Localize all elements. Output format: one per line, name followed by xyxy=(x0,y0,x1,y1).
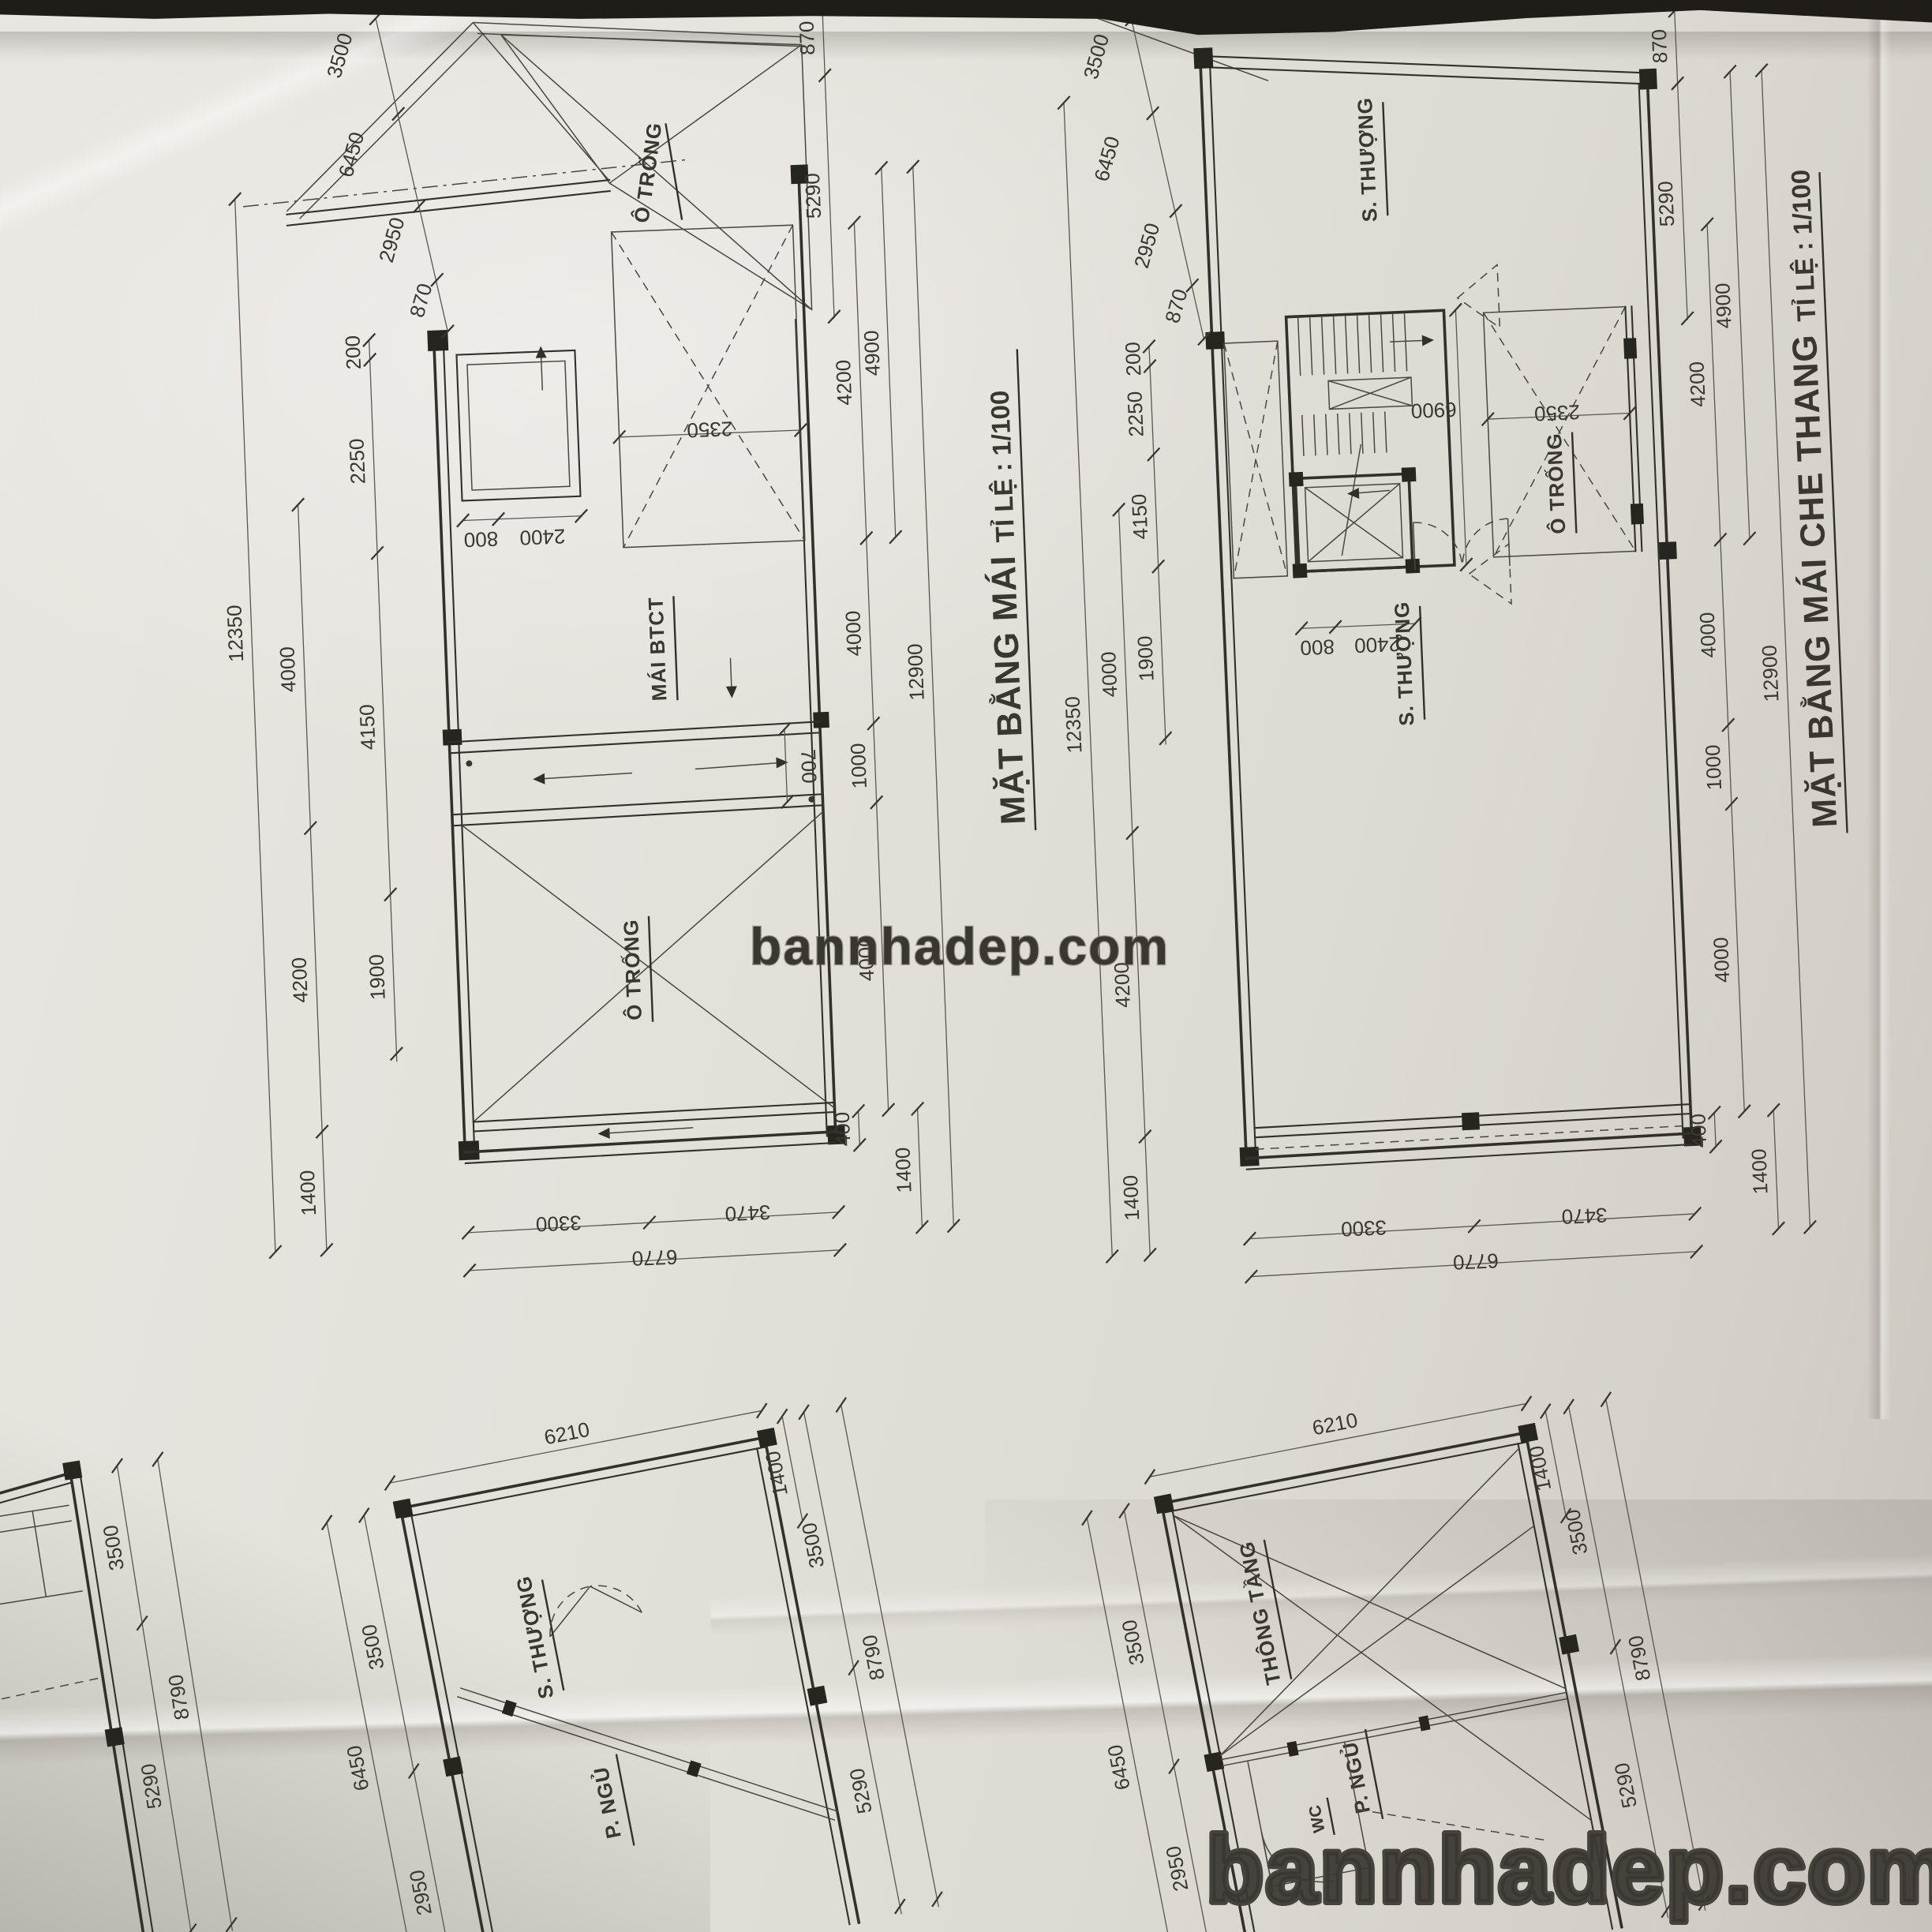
main-void-o-trong xyxy=(462,811,834,1121)
dim-800: 800 xyxy=(1300,635,1335,660)
dim-5290: 5290 xyxy=(136,1762,167,1810)
dim-slant-3500: 3500 xyxy=(322,30,358,80)
dim-right-3500: 3500 xyxy=(1560,1507,1592,1557)
dim-3300: 3300 xyxy=(1341,1215,1387,1241)
dim-left-4200: 4200 xyxy=(1110,962,1135,1009)
dim-2250: 2250 xyxy=(1122,391,1148,437)
dim-left-2950: 2950 xyxy=(405,1868,436,1918)
dim-right-8790: 8790 xyxy=(1623,1634,1655,1683)
dim-4150: 4150 xyxy=(1127,493,1152,540)
bottom-strip xyxy=(464,1103,837,1163)
dim-right-5290: 5290 xyxy=(1609,1761,1641,1810)
dim-right-5290: 5290 xyxy=(844,1766,876,1816)
dim-void-2350: 2350 xyxy=(1533,400,1580,425)
dim-800: 800 xyxy=(463,527,499,552)
dim-r-4000b: 4000 xyxy=(853,935,878,982)
staircase xyxy=(1286,310,1455,571)
dim-rt-870: 870 xyxy=(795,21,820,56)
dim-left-4000: 4000 xyxy=(275,646,301,693)
dim-r-1000: 1000 xyxy=(846,743,871,789)
dim-left-3500: 3500 xyxy=(1117,1618,1148,1668)
room-label-s-thuong: S. THƯỢNG xyxy=(1390,601,1419,726)
dim-12900: 12900 xyxy=(1758,645,1784,703)
left-inner-chain xyxy=(362,334,402,1062)
dim-1900: 1900 xyxy=(365,954,390,1001)
dim-left-4200: 4200 xyxy=(287,957,313,1003)
left-dashed-void xyxy=(1224,341,1287,578)
dim-left-6450: 6450 xyxy=(342,1743,373,1793)
dim-6770: 6770 xyxy=(631,1245,678,1271)
dim-slant-2950: 2950 xyxy=(1129,220,1164,271)
walls xyxy=(393,1428,870,1932)
double-door xyxy=(1413,519,1510,570)
room-label-o-trong-top: Ô TRỐNG xyxy=(629,121,666,224)
dim-right-3500: 3500 xyxy=(797,1521,829,1571)
divider-wall xyxy=(1220,1689,1568,1770)
plan-title-roof: MẶT BẰNG MÁITỈ LỆ : 1/100 xyxy=(977,390,1033,826)
dim-8790: 8790 xyxy=(163,1673,194,1722)
room-label-wc: WC xyxy=(1305,1803,1328,1834)
dim-6770: 6770 xyxy=(1452,1249,1499,1274)
dim-r-1400: 1400 xyxy=(1747,1148,1772,1195)
dim-rt-870: 870 xyxy=(1647,28,1672,64)
dashed-void xyxy=(605,225,811,548)
double-door xyxy=(542,1578,643,1637)
dim-rt-5290: 5290 xyxy=(1653,181,1679,227)
dim-400: 400 xyxy=(1686,1113,1711,1148)
dim-3470: 3470 xyxy=(1561,1204,1608,1229)
dim-12350: 12350 xyxy=(1060,696,1086,754)
left-col-chain xyxy=(291,498,333,1256)
dim-2400: 2400 xyxy=(519,525,566,550)
dim-gutter-700: 700 xyxy=(796,749,822,784)
outer-walls xyxy=(1193,29,1702,1166)
dim-1900: 1900 xyxy=(1133,635,1158,682)
dim-2250: 2250 xyxy=(344,438,369,485)
right-top-chain xyxy=(1668,4,1694,324)
dim-r-4000a: 4000 xyxy=(1695,612,1720,658)
dim-4150: 4150 xyxy=(354,704,380,751)
dim-right-8790: 8790 xyxy=(857,1633,889,1683)
blueprint-photo: Ô TRỐNG xyxy=(0,0,1932,1932)
underline-s-thuong-top xyxy=(1383,102,1387,215)
left-total-chain xyxy=(228,193,282,1259)
dim-6900: 6900 xyxy=(1410,398,1457,423)
floor-plan-fragment-right: THÔNG TẦNG P. NGỦ WC xyxy=(1028,1356,1769,1932)
dim-200: 200 xyxy=(1121,342,1146,377)
room-label-mai-btct: MÁI BTCT xyxy=(643,597,671,702)
underline-o-trong xyxy=(1572,432,1576,534)
dim-4900: 4900 xyxy=(859,330,885,376)
dim-200: 200 xyxy=(340,335,365,370)
dim-12350: 12350 xyxy=(222,605,248,662)
dim-left-6450: 6450 xyxy=(1103,1743,1134,1792)
room-label-s-thuong: S. THƯỢNG xyxy=(511,1574,559,1701)
dim-left-3500: 3500 xyxy=(357,1623,388,1672)
dim-6210: 6210 xyxy=(1310,1408,1360,1440)
box-dim-chain xyxy=(456,509,587,526)
room-label-s-thuong-top: S. THƯỢNG xyxy=(1353,97,1382,223)
dim-void-2350: 2350 xyxy=(687,417,733,442)
left-inner-chain xyxy=(1143,340,1172,745)
dim-3470: 3470 xyxy=(724,1200,771,1226)
roof-plan: Ô TRỐNG xyxy=(161,0,1079,1322)
dim-r-4200: 4200 xyxy=(1684,361,1709,407)
dim-left-4000: 4000 xyxy=(1096,651,1121,698)
room-label-o-trong: Ô TRỐNG xyxy=(619,919,646,1020)
stair-roof-plan: S. THƯỢNG xyxy=(1013,0,1932,1341)
dim-slant-870: 870 xyxy=(405,281,437,320)
dim-12900: 12900 xyxy=(903,643,929,701)
dim-left-1400: 1400 xyxy=(295,1170,320,1216)
wc-room xyxy=(1248,1707,1548,1894)
underline-mai-btct xyxy=(673,596,677,700)
dim-1400: 1400 xyxy=(1524,1443,1556,1493)
blueprint-paper: Ô TRỐNG xyxy=(0,0,1932,1932)
void-cross-lines xyxy=(1174,1448,1591,1887)
gutter-strip xyxy=(449,721,823,826)
dim-r-1000: 1000 xyxy=(1701,744,1726,791)
dim-4900: 4900 xyxy=(1710,283,1735,329)
dim-3500: 3500 xyxy=(98,1523,129,1572)
dim-slant-3500: 3500 xyxy=(1079,32,1114,82)
glass-divider-wall xyxy=(455,1622,839,1886)
underline-s-thuong xyxy=(1420,606,1425,720)
plan-title-stair: MẶT BẰNG MÁI CHE THANGTỈ LỆ : 1/100 xyxy=(1777,169,1844,829)
walls xyxy=(1154,1423,1633,1932)
top-beam xyxy=(242,159,690,227)
dim-r-4200: 4200 xyxy=(831,359,856,406)
walls xyxy=(0,1430,156,1932)
dim-r-1400: 1400 xyxy=(890,1147,915,1193)
dim-r-4000b: 4000 xyxy=(1709,937,1734,983)
dim-slant-870: 870 xyxy=(1160,286,1193,326)
skylight-box xyxy=(456,350,580,501)
left-col-chain xyxy=(1112,503,1156,1261)
right-top-chain xyxy=(815,0,841,324)
dim-r-4000a: 4000 xyxy=(841,610,866,657)
dim-400: 400 xyxy=(830,1111,856,1147)
dim-left-1400: 1400 xyxy=(1118,1174,1144,1221)
bottom-strip xyxy=(1245,1103,1692,1170)
dim-slant-6450: 6450 xyxy=(1089,133,1124,184)
dim-slant-2950: 2950 xyxy=(374,215,410,265)
dim-rt-5290: 5290 xyxy=(800,173,826,219)
room-label-o-trong: Ô TRỐNG xyxy=(1542,432,1570,534)
dim-left-2950: 2950 xyxy=(1161,1844,1193,1893)
dim-3300: 3300 xyxy=(535,1211,582,1236)
